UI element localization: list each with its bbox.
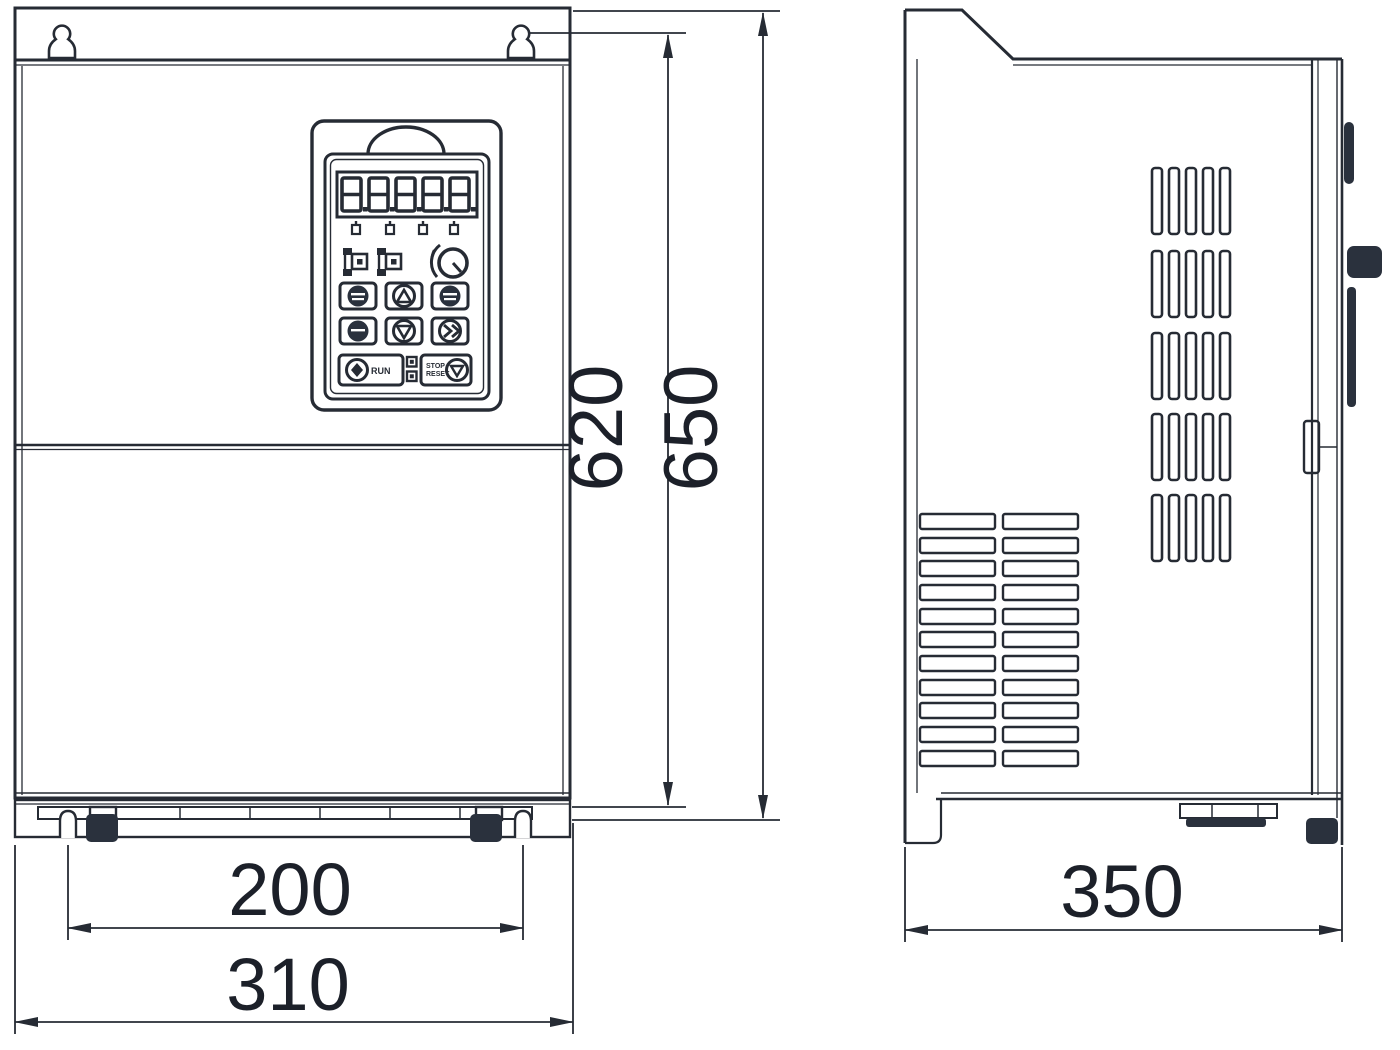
technical-drawing-page: RUN STOP RESET <box>0 0 1400 1050</box>
display-digit <box>369 178 395 212</box>
unit-indicator <box>386 221 394 234</box>
side-bottom-details <box>1180 804 1338 844</box>
mounting-keyhole-left <box>49 26 75 58</box>
mounting-keyhole-right <box>508 26 534 58</box>
program-button <box>340 283 376 309</box>
seven-segment-display <box>337 172 477 217</box>
front-face-profile <box>1344 122 1382 407</box>
dim-350-label: 350 <box>1060 850 1183 933</box>
dim-310-label: 310 <box>226 943 349 1026</box>
enclosure-front-body <box>15 60 570 798</box>
knob-profile <box>1347 246 1382 278</box>
dimension-mounting-width: 200 <box>68 845 523 940</box>
side-vent-slots-vertical <box>1152 168 1230 561</box>
display-digit <box>450 178 476 212</box>
run-button: RUN <box>339 355 403 385</box>
mounting-bracket <box>15 8 570 65</box>
unit-indicator <box>450 221 458 234</box>
display-digit <box>423 178 449 212</box>
dim-650-label: 650 <box>649 365 734 492</box>
dimension-drawing: RUN STOP RESET <box>0 0 1400 1050</box>
unit-indicator <box>352 221 360 234</box>
display-digit <box>396 178 422 212</box>
status-indicator-left <box>343 248 367 276</box>
mounting-slot-right <box>515 811 531 838</box>
unit-indicator <box>419 221 427 234</box>
multifunction-button <box>340 318 376 344</box>
shift-button <box>432 318 468 344</box>
stop-label: STOP <box>426 363 445 370</box>
display-digit <box>342 178 368 212</box>
enclosure-side-body <box>905 10 1342 845</box>
run-button-label: RUN <box>371 366 391 376</box>
dimension-depth: 350 <box>905 847 1342 942</box>
keypad-edge-profile-lower <box>1347 287 1356 407</box>
keypad-top-arc <box>368 127 444 154</box>
keypad-panel: RUN STOP RESET <box>312 121 501 410</box>
dim-200-label: 200 <box>228 848 351 931</box>
side-view <box>905 10 1382 845</box>
terminal-block <box>1180 804 1277 818</box>
back-leg <box>905 799 941 843</box>
foot-right <box>470 814 502 842</box>
dim-620-label: 620 <box>554 365 639 492</box>
foot-front <box>1306 818 1338 844</box>
foot-left <box>86 814 118 842</box>
enter-button <box>432 283 468 309</box>
status-indicator-right <box>377 248 401 276</box>
up-button <box>386 283 422 309</box>
function-squares <box>407 357 417 381</box>
side-vent-slats-horizontal <box>920 514 1078 766</box>
mounting-slot-left <box>60 811 76 838</box>
unit-indicators <box>352 221 458 234</box>
down-button <box>386 318 422 344</box>
keypad-edge-profile-upper <box>1344 122 1354 184</box>
potentiometer-knob-icon <box>431 245 467 277</box>
dimensions: 620 650 200 310 350 <box>15 11 1342 1034</box>
front-view: RUN STOP RESET <box>15 8 570 842</box>
bottom-gland-strip <box>15 800 570 842</box>
stop-reset-button: STOP RESET <box>421 355 471 385</box>
